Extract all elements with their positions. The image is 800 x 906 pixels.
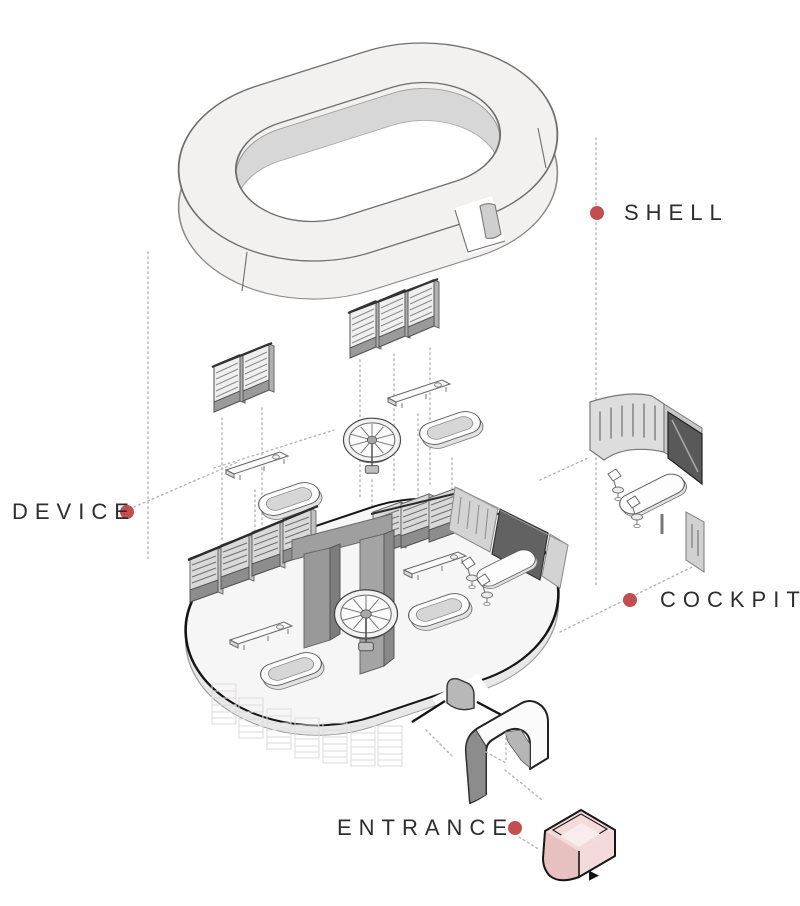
shell-label: SHELL: [624, 200, 729, 226]
cockpit-desk: [615, 470, 692, 520]
entrance-label: ENTRANCE: [337, 815, 514, 841]
exploded-axonometric-diagram: SHELL DEVICE COCKPIT ENTRANCE ▶: [0, 0, 800, 906]
bench: [226, 452, 288, 480]
cockpit-leader-dot: [623, 593, 637, 607]
fan-device: [344, 418, 401, 473]
entrance-highlight-box: [543, 810, 615, 880]
cockpit-module: [590, 394, 704, 572]
shell-shape: [134, 13, 602, 329]
play-arrow-icon: ▶: [589, 868, 599, 881]
bench: [388, 380, 450, 408]
cockpit-stool: [608, 469, 624, 501]
device-label: DEVICE: [12, 499, 136, 525]
cockpit-lower-panel: [686, 512, 704, 572]
device-layer: [212, 279, 488, 523]
shell-leader-dot: [590, 206, 604, 220]
bathtub: [415, 408, 488, 452]
diagram-canvas: [0, 0, 800, 906]
cockpit-label: COCKPIT: [660, 587, 800, 613]
louver-rack-left: [212, 343, 274, 412]
